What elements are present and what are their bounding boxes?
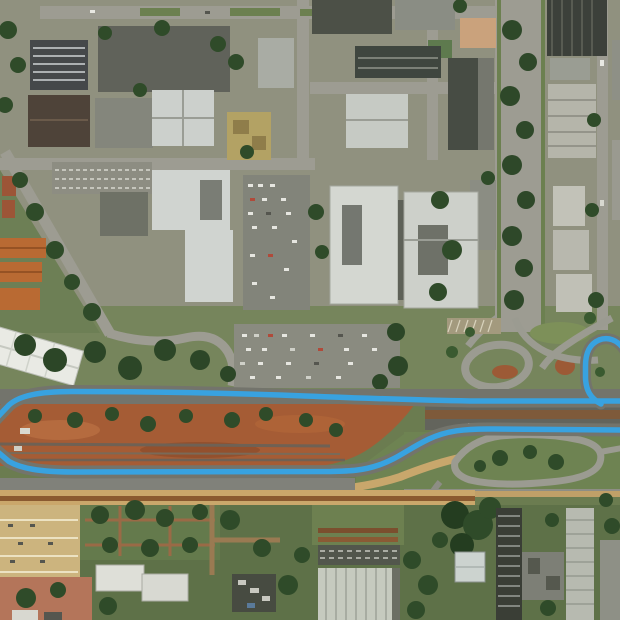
south-service-road	[0, 478, 355, 490]
tan-strip-east	[475, 491, 620, 497]
map-canvas[interactable]	[0, 0, 620, 620]
orange-roof-buildings	[0, 238, 46, 310]
tan-strip-center	[0, 496, 475, 501]
